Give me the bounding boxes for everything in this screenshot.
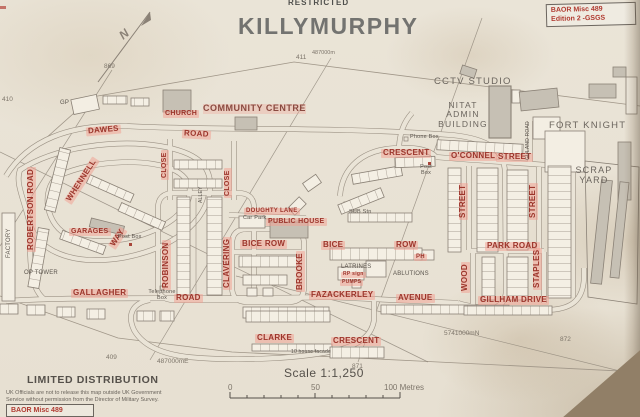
street-wood: WOOD bbox=[461, 262, 470, 293]
poi-ph: PH bbox=[414, 254, 427, 261]
poi-gp: GP bbox=[60, 100, 69, 107]
scale-tick-100: 100 Metres bbox=[384, 384, 424, 393]
poi-public-house: PUBLIC HOUSE bbox=[266, 218, 327, 226]
edition-number: Edition 2 -GSGS bbox=[551, 13, 631, 25]
poi-latrines: LATRINES bbox=[341, 264, 372, 271]
street-gillham-drive: GILLHAM DRIVE bbox=[478, 296, 549, 305]
poi-post-box-east: Post Box bbox=[416, 164, 436, 176]
grid-easting-872: 872 bbox=[560, 336, 571, 343]
street-brooke: BROOKE bbox=[296, 251, 305, 292]
scale-tick-50: 50 bbox=[311, 384, 320, 393]
poi-factory: FACTORY bbox=[6, 228, 13, 258]
street-gallagher: GALLAGHER bbox=[71, 289, 128, 298]
street-close-a: CLOSE bbox=[161, 150, 169, 180]
poi-fort-knight: FORT KNIGHT bbox=[549, 121, 626, 131]
note-ten-house-facade: 10 house facade bbox=[291, 350, 331, 356]
street-crescent-north: CRESCENT bbox=[381, 149, 431, 158]
poi-pumps: PUMPS bbox=[340, 280, 363, 286]
poi-community-centre: COMMUNITY CENTRE bbox=[203, 104, 306, 114]
street-doughty-lane: DOUGHTY LANE bbox=[244, 208, 300, 215]
poi-phone-box: Phone Box bbox=[410, 134, 439, 140]
street-staples: STAPLES bbox=[533, 248, 542, 290]
scrap-yard-line2: YARD bbox=[572, 176, 616, 186]
grid-easting-869: 869 bbox=[104, 63, 115, 70]
distribution-note-line2: Service without permission from the Dire… bbox=[6, 397, 159, 403]
poi-rp-sign: RP sign bbox=[341, 272, 366, 278]
poi-op-tower: OP TOWER bbox=[24, 270, 58, 277]
street-clavering: CLAVERING bbox=[223, 237, 232, 290]
street-alley: ALLEY bbox=[199, 186, 205, 203]
street-street-a: STREET bbox=[459, 183, 468, 220]
poi-post-box-west: Post Box bbox=[118, 234, 142, 240]
scale-tick-0: 0 bbox=[228, 384, 232, 393]
poi-car-park: Car Park bbox=[243, 215, 266, 221]
poi-nitat-admin-building: NITAT ADMIN BUILDING bbox=[437, 101, 489, 129]
street-close-b: CLOSE bbox=[224, 168, 232, 198]
poi-cctv-studio: CCTV STUDIO bbox=[434, 77, 512, 87]
map-title: KILLYMURPHY bbox=[238, 13, 419, 40]
street-robinson: ROBINSON bbox=[162, 240, 171, 290]
poi-ablutions: ABLUTIONS bbox=[393, 271, 429, 278]
grid-northing-5741000: 5741000mN bbox=[444, 330, 479, 337]
grid-easting-870-bottom: 487000mE bbox=[157, 358, 188, 365]
street-gallagher-road: ROAD bbox=[174, 294, 203, 303]
corner-series-box: BAOR Misc 489 bbox=[6, 404, 94, 417]
grid-northing-409: 409 bbox=[106, 354, 117, 361]
poi-telephone-box: Telephone Box bbox=[146, 289, 178, 301]
corner-series-text: BAOR Misc 489 bbox=[11, 406, 89, 415]
scale-bar bbox=[230, 392, 400, 398]
buildings bbox=[0, 6, 639, 358]
limited-distribution-heading: LIMITED DISTRIBUTION bbox=[27, 374, 159, 386]
grid-northing-411: 411 bbox=[296, 54, 306, 61]
street-bice-east: BICE bbox=[321, 241, 345, 250]
street-fazackerley: FAZACKERLEY bbox=[309, 291, 375, 300]
street-avenue: AVENUE bbox=[396, 294, 435, 303]
map-scan: RESTRICTED KILLYMURPHY BAOR Misc 489 Edi… bbox=[0, 0, 640, 417]
street-guland-road: GULAND ROAD bbox=[526, 121, 532, 160]
edition-box: BAOR Misc 489 Edition 2 -GSGS bbox=[546, 2, 637, 27]
street-street-b: STREET bbox=[529, 183, 538, 220]
street-clarke: CLARKE bbox=[255, 334, 294, 343]
street-clarke-crescent: CRESCENT bbox=[331, 337, 381, 346]
classification-banner: RESTRICTED bbox=[288, 0, 349, 7]
nitat-line3: BUILDING bbox=[437, 120, 489, 129]
grid-northing-410: 410 bbox=[2, 96, 13, 103]
grid-easting-870-top: 487000m bbox=[312, 50, 335, 56]
street-robertson-road: ROBERTSON ROAD bbox=[27, 167, 36, 252]
distribution-note-line1: UK Officials are not to release this map… bbox=[6, 390, 162, 396]
street-oconnel: O'CONNEL bbox=[449, 152, 497, 161]
street-dawes-road: ROAD bbox=[182, 129, 211, 139]
street-row-east: ROW bbox=[394, 241, 418, 250]
north-arrow bbox=[98, 12, 151, 82]
street-bice-row-west: BICE ROW bbox=[240, 240, 287, 249]
poi-garages: GARAGES bbox=[69, 228, 111, 236]
poi-church: CHURCH bbox=[163, 110, 199, 118]
grid-easting-871: 871 bbox=[352, 363, 363, 370]
poi-scrap-yard: SCRAP YARD bbox=[572, 166, 616, 186]
poi-sub-stn: SUB Stn bbox=[349, 209, 372, 215]
